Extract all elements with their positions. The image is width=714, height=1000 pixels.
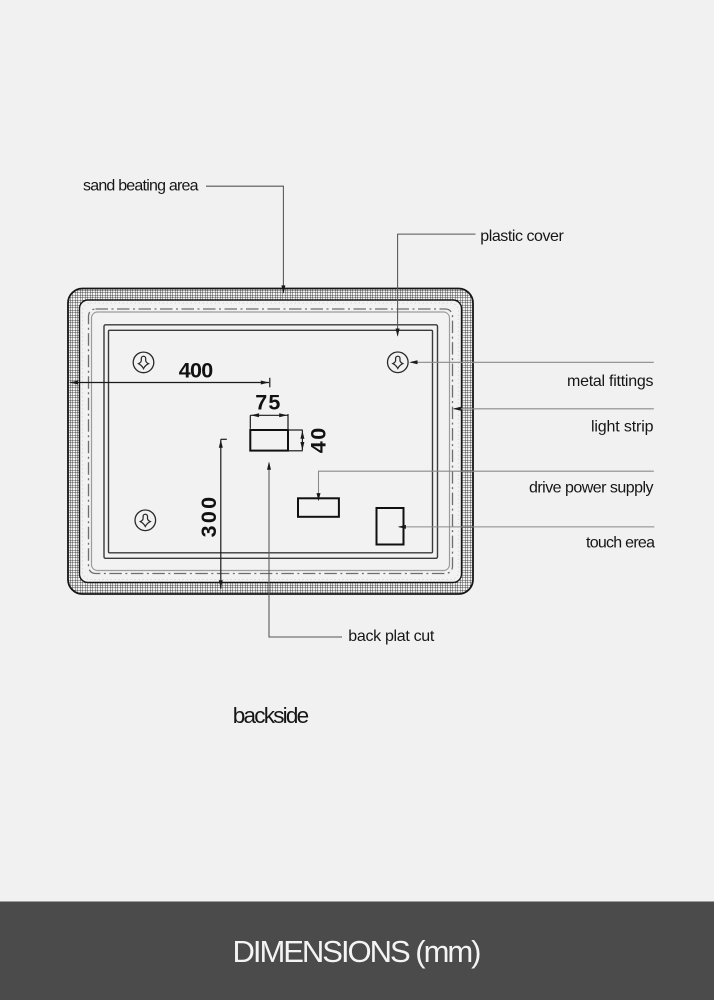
svg-text:75: 75	[255, 390, 280, 414]
svg-text:40: 40	[307, 428, 331, 454]
svg-text:plastic cover: plastic cover	[480, 228, 564, 245]
svg-text:touch erea: touch erea	[586, 534, 655, 551]
svg-text:sand beating area: sand beating area	[83, 177, 199, 194]
svg-text:backside: backside	[233, 703, 310, 728]
svg-text:back plat cut: back plat cut	[348, 628, 435, 645]
svg-text:metal fittings: metal fittings	[567, 373, 654, 390]
svg-text:DIMENSIONS (mm): DIMENSIONS (mm)	[233, 934, 482, 969]
svg-text:400: 400	[179, 359, 214, 383]
svg-text:drive power supply: drive power supply	[529, 480, 654, 497]
svg-text:light strip: light strip	[591, 419, 654, 436]
svg-text:300: 300	[197, 497, 221, 538]
